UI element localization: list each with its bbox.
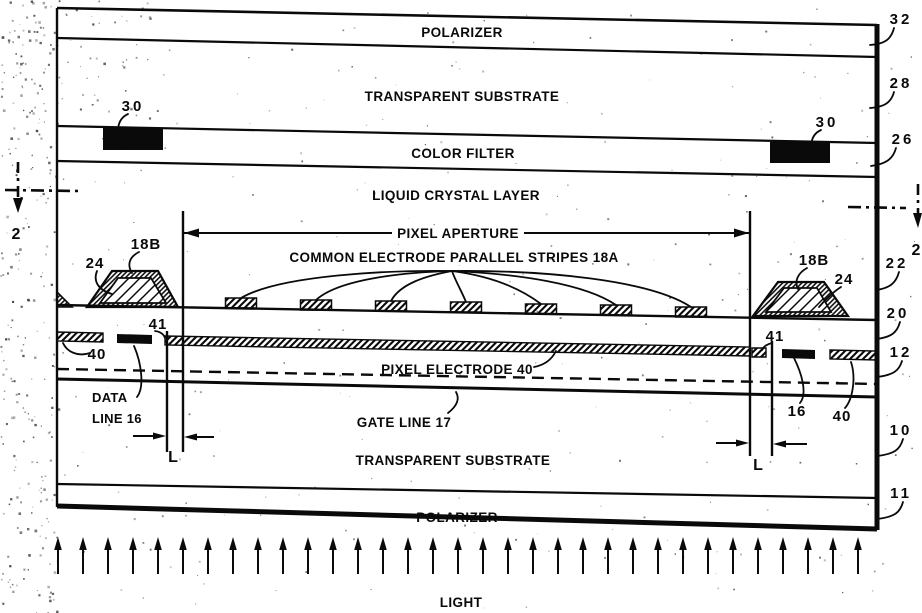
dimension-L-right: [716, 440, 807, 448]
leader-28: [870, 92, 894, 108]
light-arrowhead-icon: [504, 537, 512, 550]
fan-line-4: [452, 271, 466, 302]
polarizer-bottom-top-line: [57, 484, 877, 498]
light-arrowhead-icon: [579, 537, 587, 550]
light-arrowhead-icon: [279, 537, 287, 550]
section-line-left: [5, 190, 78, 191]
section-arrowhead-right-icon: [913, 213, 922, 228]
light-arrowhead-icon: [429, 537, 437, 550]
fan-line-7: [452, 271, 691, 307]
light-arrowhead-icon: [354, 537, 362, 550]
ref-12: 12: [890, 344, 913, 361]
section-marker-left: [5, 162, 78, 213]
ref-30-left: 30: [122, 98, 145, 115]
label-pixel-electrode: PIXEL ELECTRODE 40: [381, 362, 533, 377]
substrate-top-bottom-line: [57, 126, 877, 143]
pixel-electrode-main: [165, 336, 750, 356]
light-arrowhead-icon: [404, 537, 412, 550]
label-L-left: L: [168, 449, 178, 466]
ref-20: 20: [887, 305, 910, 322]
black-matrix-right: [770, 142, 830, 163]
ref-41-right: 41: [766, 328, 785, 345]
ref-41-left: 41: [149, 316, 168, 333]
polarizer-top-bottom-line: [57, 38, 877, 57]
layer-label-liquid-crystal: LIQUID CRYSTAL LAYER: [372, 188, 540, 203]
ref-16-right: 16: [788, 403, 807, 420]
section-marker-right: [848, 184, 922, 228]
light-arrowhead-icon: [129, 537, 137, 550]
fan-line-3: [391, 271, 452, 301]
leader-40-right: [845, 362, 853, 408]
L-left-arrowhead-b-icon: [184, 434, 197, 441]
light-arrowhead-icon: [454, 537, 462, 550]
ref-10: 10: [890, 422, 913, 439]
stripe-2: [301, 300, 332, 310]
ref-26: 26: [892, 131, 915, 148]
light-arrowhead-icon: [479, 537, 487, 550]
label-gate-line: GATE LINE 17: [357, 415, 452, 430]
light-arrowhead-icon: [679, 537, 687, 550]
light-arrowhead-icon: [829, 537, 837, 550]
light-arrowhead-icon: [179, 537, 187, 550]
layer-label-polarizer-bottom: POLARIZER: [416, 510, 498, 525]
gate-line: [57, 379, 877, 397]
light-arrowhead-icon: [629, 537, 637, 550]
section-line-right: [848, 207, 906, 208]
figure-frame: [57, 8, 877, 530]
ref-40-left: 40: [88, 346, 107, 363]
leader-40-left: [63, 343, 90, 354]
aperture-vertical-lines: [167, 211, 772, 456]
light-arrowhead-icon: [304, 537, 312, 550]
light-arrowhead-icon: [754, 537, 762, 550]
light-arrowhead-icon: [654, 537, 662, 550]
data-line-right: [782, 349, 815, 359]
light-arrowhead-icon: [329, 537, 337, 550]
color-filter-bottom-line: [57, 161, 877, 177]
light-arrowhead-icon: [804, 537, 812, 550]
light-arrowhead-icon: [204, 537, 212, 550]
light-arrowhead-icon: [704, 537, 712, 550]
frame-top-line: [57, 8, 877, 25]
light-arrowhead-icon: [854, 537, 862, 550]
L-right-arrowhead-b-icon: [773, 441, 786, 448]
layer-label-polarizer-top: POLARIZER: [421, 25, 503, 40]
L-right-arrowhead-a-icon: [736, 440, 749, 447]
label-L-right: L: [753, 457, 763, 474]
leader-20: [877, 322, 900, 339]
dim-arrowhead-right-icon: [734, 229, 749, 238]
layer-label-color-filter: COLOR FILTER: [411, 146, 515, 161]
layer-label-substrate-bottom: TRANSPARENT SUBSTRATE: [356, 453, 551, 468]
layer-boundary-lines: [57, 38, 877, 498]
stripe-6: [601, 305, 632, 315]
ref-28: 28: [890, 75, 913, 92]
label-section-2-left: 2: [12, 226, 21, 243]
figure-canvas: POLARIZER TRANSPARENT SUBSTRATE COLOR FI…: [0, 0, 922, 613]
layer-label-substrate-top: TRANSPARENT SUBSTRATE: [365, 89, 560, 104]
stripe-5: [526, 304, 557, 314]
black-matrix-left: [103, 128, 163, 150]
light-arrowhead-icon: [554, 537, 562, 550]
light-arrowhead-icon: [104, 537, 112, 550]
label-light: LIGHT: [440, 595, 483, 610]
light-arrowhead-icon: [729, 537, 737, 550]
leader-pixel-electrode: [534, 351, 556, 367]
label-data-line-word2: LINE 16: [92, 411, 142, 426]
ref-40-right: 40: [833, 408, 852, 425]
light-arrowhead-icon: [254, 537, 262, 550]
light-arrowhead-icon: [79, 537, 87, 550]
labels: POLARIZER TRANSPARENT SUBSTRATE COLOR FI…: [92, 25, 619, 610]
patent-figure-lcd-cross-section: POLARIZER TRANSPARENT SUBSTRATE COLOR FI…: [0, 0, 922, 613]
ref-32: 32: [890, 11, 913, 28]
L-left-arrowhead-a-icon: [153, 433, 166, 440]
label-pixel-aperture: PIXEL APERTURE: [397, 226, 519, 241]
leader-10: [877, 439, 903, 456]
light-arrowhead-icon: [779, 537, 787, 550]
ref-24-left: 24: [86, 255, 105, 272]
data-line-left: [117, 334, 152, 344]
light-arrowhead-icon: [379, 537, 387, 550]
ref-11: 11: [890, 485, 912, 502]
ref-24-right: 24: [835, 271, 854, 288]
light-arrowhead-icon: [54, 537, 62, 550]
leader-32: [870, 28, 894, 45]
label-section-2-right: 2: [912, 242, 921, 259]
light-arrowhead-icon: [529, 537, 537, 550]
pixel-electrode-right-piece: [830, 350, 877, 360]
ref-30-right: 30: [816, 114, 839, 131]
leader-12: [877, 361, 902, 377]
light-arrowhead-icon: [604, 537, 612, 550]
leader-18b-left: [129, 252, 139, 273]
dimension-L-left: [133, 433, 214, 441]
ref-22: 22: [886, 255, 909, 272]
label-data-line-word1: DATA: [92, 390, 128, 405]
leader-gate-line: [448, 392, 458, 413]
stripe-3: [376, 301, 407, 311]
ref-18b-right: 18B: [799, 252, 830, 269]
pixel-electrode-right-small: [752, 348, 766, 357]
section-arrowhead-left-icon: [13, 198, 23, 213]
ref-18b-left: 18B: [131, 236, 162, 253]
light-arrowhead-icon: [229, 537, 237, 550]
leader-11: [877, 502, 903, 519]
electrode-row: [57, 332, 877, 360]
stripe-7: [676, 307, 707, 317]
pixel-electrode-left-piece: [57, 332, 103, 342]
label-common-electrode: COMMON ELECTRODE PARALLEL STRIPES 18A: [289, 250, 618, 265]
light-arrowhead-icon: [154, 537, 162, 550]
stripe-1: [226, 298, 257, 308]
stripe-4: [451, 302, 482, 312]
edge-bump-left: [57, 292, 72, 307]
dim-arrowhead-left-icon: [184, 229, 199, 238]
